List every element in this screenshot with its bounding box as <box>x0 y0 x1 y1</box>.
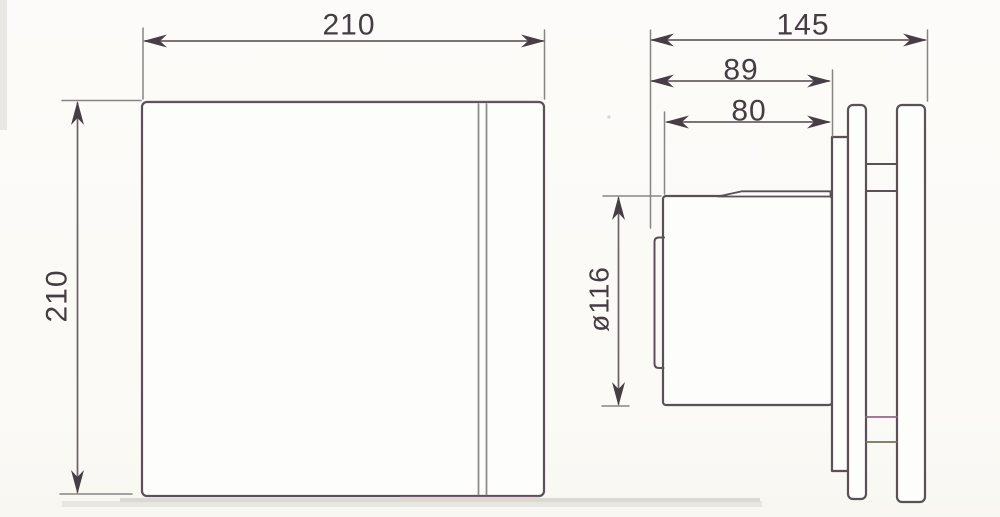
fan-front-cover-outline <box>142 102 544 496</box>
backplate-inner <box>848 105 866 499</box>
dim-front-height: 210 <box>41 101 142 495</box>
bottom-shadow-band <box>62 501 762 507</box>
dim-label-front-height: 210 <box>41 269 74 322</box>
page-edge-shadow <box>0 0 7 130</box>
dim-label-duct-length: 80 <box>731 95 766 128</box>
technical-drawing-page: 210 210 145 89 <box>0 0 1000 517</box>
dim-duct-length: 80 <box>665 95 832 195</box>
front-view <box>142 101 544 496</box>
motor-body-outline <box>832 137 848 471</box>
bottom-shadow-line <box>120 498 760 502</box>
dim-front-width: 210 <box>143 9 545 100</box>
dim-label-front-width: 210 <box>322 9 375 42</box>
dim-label-depth-to-backplate: 89 <box>723 54 758 87</box>
fan-dimension-drawing: 210 210 145 89 <box>0 0 1000 517</box>
backplate-outer <box>897 105 925 502</box>
duct-taper-wedge <box>718 191 831 196</box>
paper-speck <box>607 115 610 118</box>
dim-label-duct-diameter: ø116 <box>584 266 615 332</box>
side-view <box>655 105 926 502</box>
dim-duct-diameter: ø116 <box>584 196 662 406</box>
duct-housing-outline <box>663 196 832 405</box>
dim-label-total-depth: 145 <box>776 9 829 42</box>
